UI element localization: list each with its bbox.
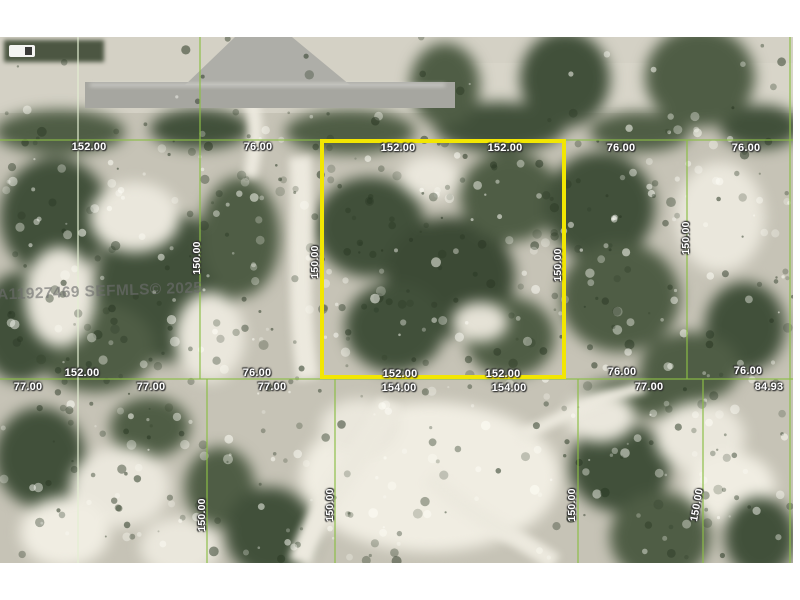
dimension-label: 76.00 bbox=[608, 366, 637, 378]
dimension-label: 77.00 bbox=[137, 381, 166, 393]
dimension-label: 152.00 bbox=[488, 142, 523, 154]
dimension-label: 150.00 bbox=[309, 245, 321, 278]
dimension-label: 76.00 bbox=[244, 141, 273, 153]
dimension-label: 154.00 bbox=[492, 382, 527, 394]
dimension-label: 77.00 bbox=[258, 381, 287, 393]
dimension-label: 76.00 bbox=[243, 367, 272, 379]
dimension-label: 150.00 bbox=[191, 241, 203, 274]
dimension-label: 150.00 bbox=[324, 488, 336, 521]
parked-truck bbox=[4, 40, 104, 62]
dimension-label: 152.00 bbox=[486, 368, 521, 380]
dimension-label: 152.00 bbox=[65, 367, 100, 379]
dimension-label: 150.00 bbox=[196, 498, 208, 531]
dimension-label: 76.00 bbox=[607, 142, 636, 154]
dimension-label: 152.00 bbox=[72, 141, 107, 153]
dimension-label: 77.00 bbox=[14, 381, 43, 393]
dimension-label: 150.00 bbox=[552, 248, 564, 281]
dimension-label: 154.00 bbox=[382, 382, 417, 394]
dimension-label: 84.93 bbox=[755, 381, 784, 393]
dimension-label: 76.00 bbox=[732, 142, 761, 154]
dimension-label: 150.00 bbox=[566, 488, 578, 521]
dimension-label: 77.00 bbox=[635, 381, 664, 393]
dimension-label: 150.00 bbox=[680, 221, 692, 254]
listing-photo-canvas: A11927469 SEFMLS© 2025 152.00 76.00 152.… bbox=[0, 0, 800, 600]
dimension-label: 76.00 bbox=[734, 365, 763, 377]
dimension-label: 152.00 bbox=[381, 142, 416, 154]
dimension-label: 152.00 bbox=[383, 368, 418, 380]
